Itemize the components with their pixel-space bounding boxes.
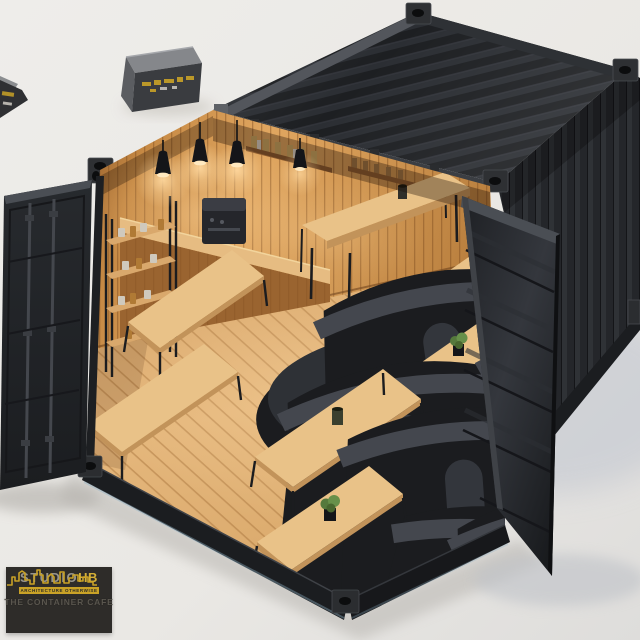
scene-svg xyxy=(0,0,640,640)
espresso-machine xyxy=(202,198,246,244)
container-left-door-open xyxy=(0,180,92,490)
logo-tagline: ARCHITECTURE OTHERWISE xyxy=(19,587,99,594)
skyline-icon xyxy=(6,567,98,587)
render-canvas: STUDIOHB ARCHITECTURE OTHERWISE THE CONT… xyxy=(0,0,640,640)
mini-container-model xyxy=(121,47,202,112)
logo-caption: THE CONTAINER CAFE xyxy=(4,597,113,607)
studio-logo-plate: STUDIOHB ARCHITECTURE OTHERWISE THE CONT… xyxy=(6,567,112,633)
